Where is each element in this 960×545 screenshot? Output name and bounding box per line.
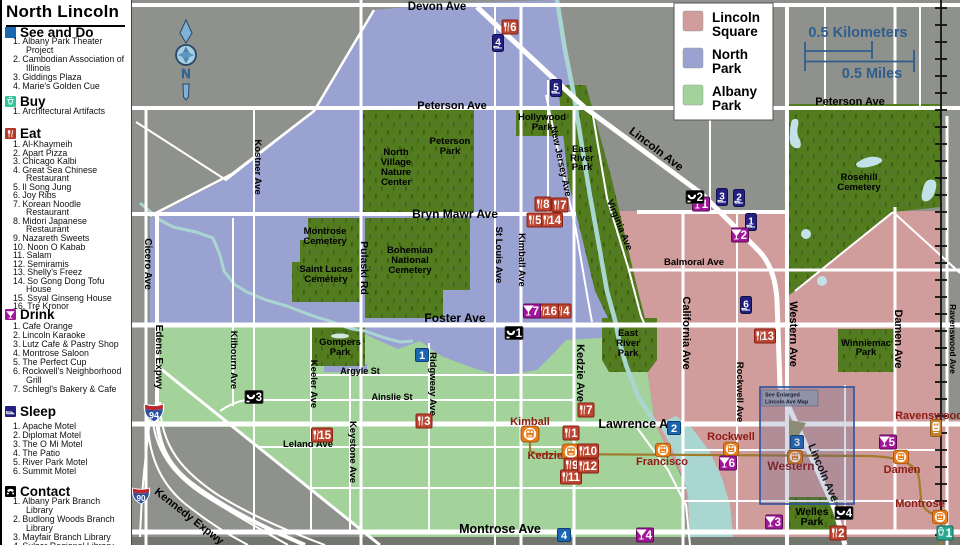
svg-text:4: 4 — [561, 530, 568, 542]
svg-text:2: 2 — [671, 423, 677, 435]
svg-text:Kostner Ave: Kostner Ave — [252, 139, 263, 194]
svg-text:Edens Expwy: Edens Expwy — [153, 325, 164, 390]
svg-text:Pulaski Rd: Pulaski Rd — [358, 241, 370, 295]
svg-text:Devon Ave: Devon Ave — [408, 1, 467, 13]
svg-text:Francisco: Francisco — [636, 456, 688, 468]
svg-text:3: 3 — [424, 416, 430, 428]
svg-text:Peterson Ave: Peterson Ave — [815, 96, 885, 108]
svg-text:Ridgweay Ave: Ridgweay Ave — [427, 352, 438, 416]
svg-text:Peterson Ave: Peterson Ave — [417, 100, 487, 112]
svg-text:4: 4 — [646, 530, 653, 542]
svg-text:13: 13 — [761, 331, 774, 343]
svg-text:Square: Square — [712, 24, 758, 39]
svg-text:0.5 Kilometers: 0.5 Kilometers — [808, 25, 907, 41]
svg-text:Ravenswood Ave: Ravenswood Ave — [948, 304, 958, 374]
svg-text:Cicero Ave: Cicero Ave — [142, 238, 153, 290]
svg-text:Montrose: Montrose — [895, 498, 945, 510]
svg-text:Park: Park — [440, 146, 461, 157]
svg-text:Kedzie Ave: Kedzie Ave — [574, 344, 586, 402]
svg-text:Lincoln Ave Map: Lincoln Ave Map — [765, 400, 809, 406]
svg-text:7: 7 — [533, 306, 539, 318]
svg-text:2: 2 — [838, 528, 844, 540]
svg-text:1: 1 — [419, 350, 425, 362]
svg-text:16: 16 — [544, 306, 557, 318]
svg-text:Rockwell Ave: Rockwell Ave — [734, 362, 745, 423]
svg-text:Lincoln: Lincoln — [712, 10, 760, 25]
svg-text:Rockwell: Rockwell — [707, 431, 755, 443]
svg-text:Park: Park — [618, 348, 639, 359]
svg-text:5: 5 — [889, 437, 896, 449]
svg-text:Keystone Ave: Keystone Ave — [347, 421, 358, 483]
svg-text:94: 94 — [149, 410, 159, 420]
svg-text:Cemetery: Cemetery — [837, 182, 881, 193]
svg-text:7: 7 — [586, 405, 592, 417]
svg-text:Argyle St: Argyle St — [340, 366, 380, 376]
svg-text:Park: Park — [572, 162, 593, 173]
svg-text:10: 10 — [584, 446, 597, 458]
svg-text:15: 15 — [318, 430, 331, 442]
svg-text:Ainslie St: Ainslie St — [371, 392, 412, 402]
svg-text:Cemetery: Cemetery — [304, 274, 348, 285]
svg-text:6: 6 — [510, 22, 516, 34]
svg-text:Damen Ave: Damen Ave — [892, 309, 904, 368]
svg-text:2: 2 — [697, 192, 703, 204]
svg-text:1: 1 — [946, 528, 953, 540]
svg-text:Keeler Ave: Keeler Ave — [308, 360, 319, 408]
svg-text:Cemetery: Cemetery — [388, 265, 432, 276]
svg-text:3: 3 — [775, 517, 781, 529]
svg-text:8: 8 — [543, 199, 550, 211]
svg-text:Park: Park — [532, 122, 553, 133]
svg-text:Park: Park — [712, 98, 742, 113]
svg-text:See Enlarged: See Enlarged — [765, 393, 800, 399]
svg-text:11: 11 — [568, 472, 581, 484]
svg-text:Albany: Albany — [712, 84, 758, 99]
svg-text:90: 90 — [136, 494, 146, 503]
svg-text:7: 7 — [560, 200, 566, 212]
svg-text:Park: Park — [856, 347, 877, 358]
svg-text:Kilbourn Ave: Kilbourn Ave — [228, 331, 239, 389]
svg-text:1: 1 — [571, 428, 578, 440]
svg-text:St Louis Ave: St Louis Ave — [493, 227, 504, 284]
svg-text:14: 14 — [548, 215, 561, 227]
svg-text:Western Ave: Western Ave — [787, 301, 799, 367]
svg-text:4: 4 — [563, 306, 570, 318]
svg-text:North: North — [712, 47, 748, 62]
svg-text:Park: Park — [330, 347, 351, 358]
svg-text:12: 12 — [584, 461, 597, 473]
svg-text:Center: Center — [381, 177, 411, 188]
svg-text:Cemetery: Cemetery — [303, 236, 347, 247]
svg-text:6: 6 — [729, 458, 735, 470]
svg-text:2: 2 — [741, 230, 747, 242]
svg-text:N: N — [181, 66, 190, 81]
svg-text:Kimball Ave: Kimball Ave — [516, 233, 527, 287]
svg-text:Balmoral Ave: Balmoral Ave — [664, 257, 724, 268]
svg-text:Montrose Ave: Montrose Ave — [459, 522, 541, 536]
svg-text:Damen: Damen — [884, 464, 921, 476]
svg-text:Park: Park — [712, 61, 742, 76]
svg-text:Ravenswood: Ravenswood — [895, 410, 960, 422]
svg-text:0.5 Miles: 0.5 Miles — [842, 66, 902, 82]
svg-text:3: 3 — [256, 392, 262, 404]
svg-text:Bryn Mawr Ave: Bryn Mawr Ave — [412, 207, 498, 221]
svg-text:1: 1 — [516, 328, 523, 340]
svg-text:4: 4 — [846, 508, 853, 520]
svg-text:Kedzie: Kedzie — [528, 450, 563, 462]
svg-text:Foster Ave: Foster Ave — [424, 311, 485, 325]
svg-text:Park: Park — [801, 516, 824, 528]
svg-text:California Ave: California Ave — [680, 296, 692, 369]
